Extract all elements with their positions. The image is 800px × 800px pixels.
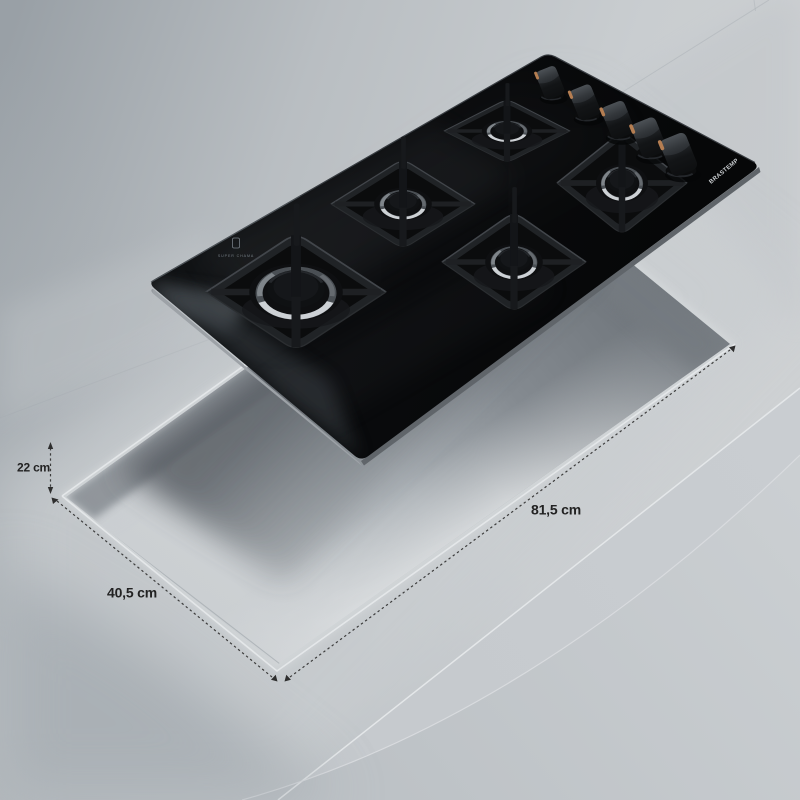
svg-text:SUPER CHAMA: SUPER CHAMA [218, 254, 254, 258]
svg-text:81,5 cm: 81,5 cm [531, 502, 581, 518]
svg-text:40,5 cm: 40,5 cm [107, 585, 157, 601]
svg-text:22 cm: 22 cm [17, 461, 50, 475]
